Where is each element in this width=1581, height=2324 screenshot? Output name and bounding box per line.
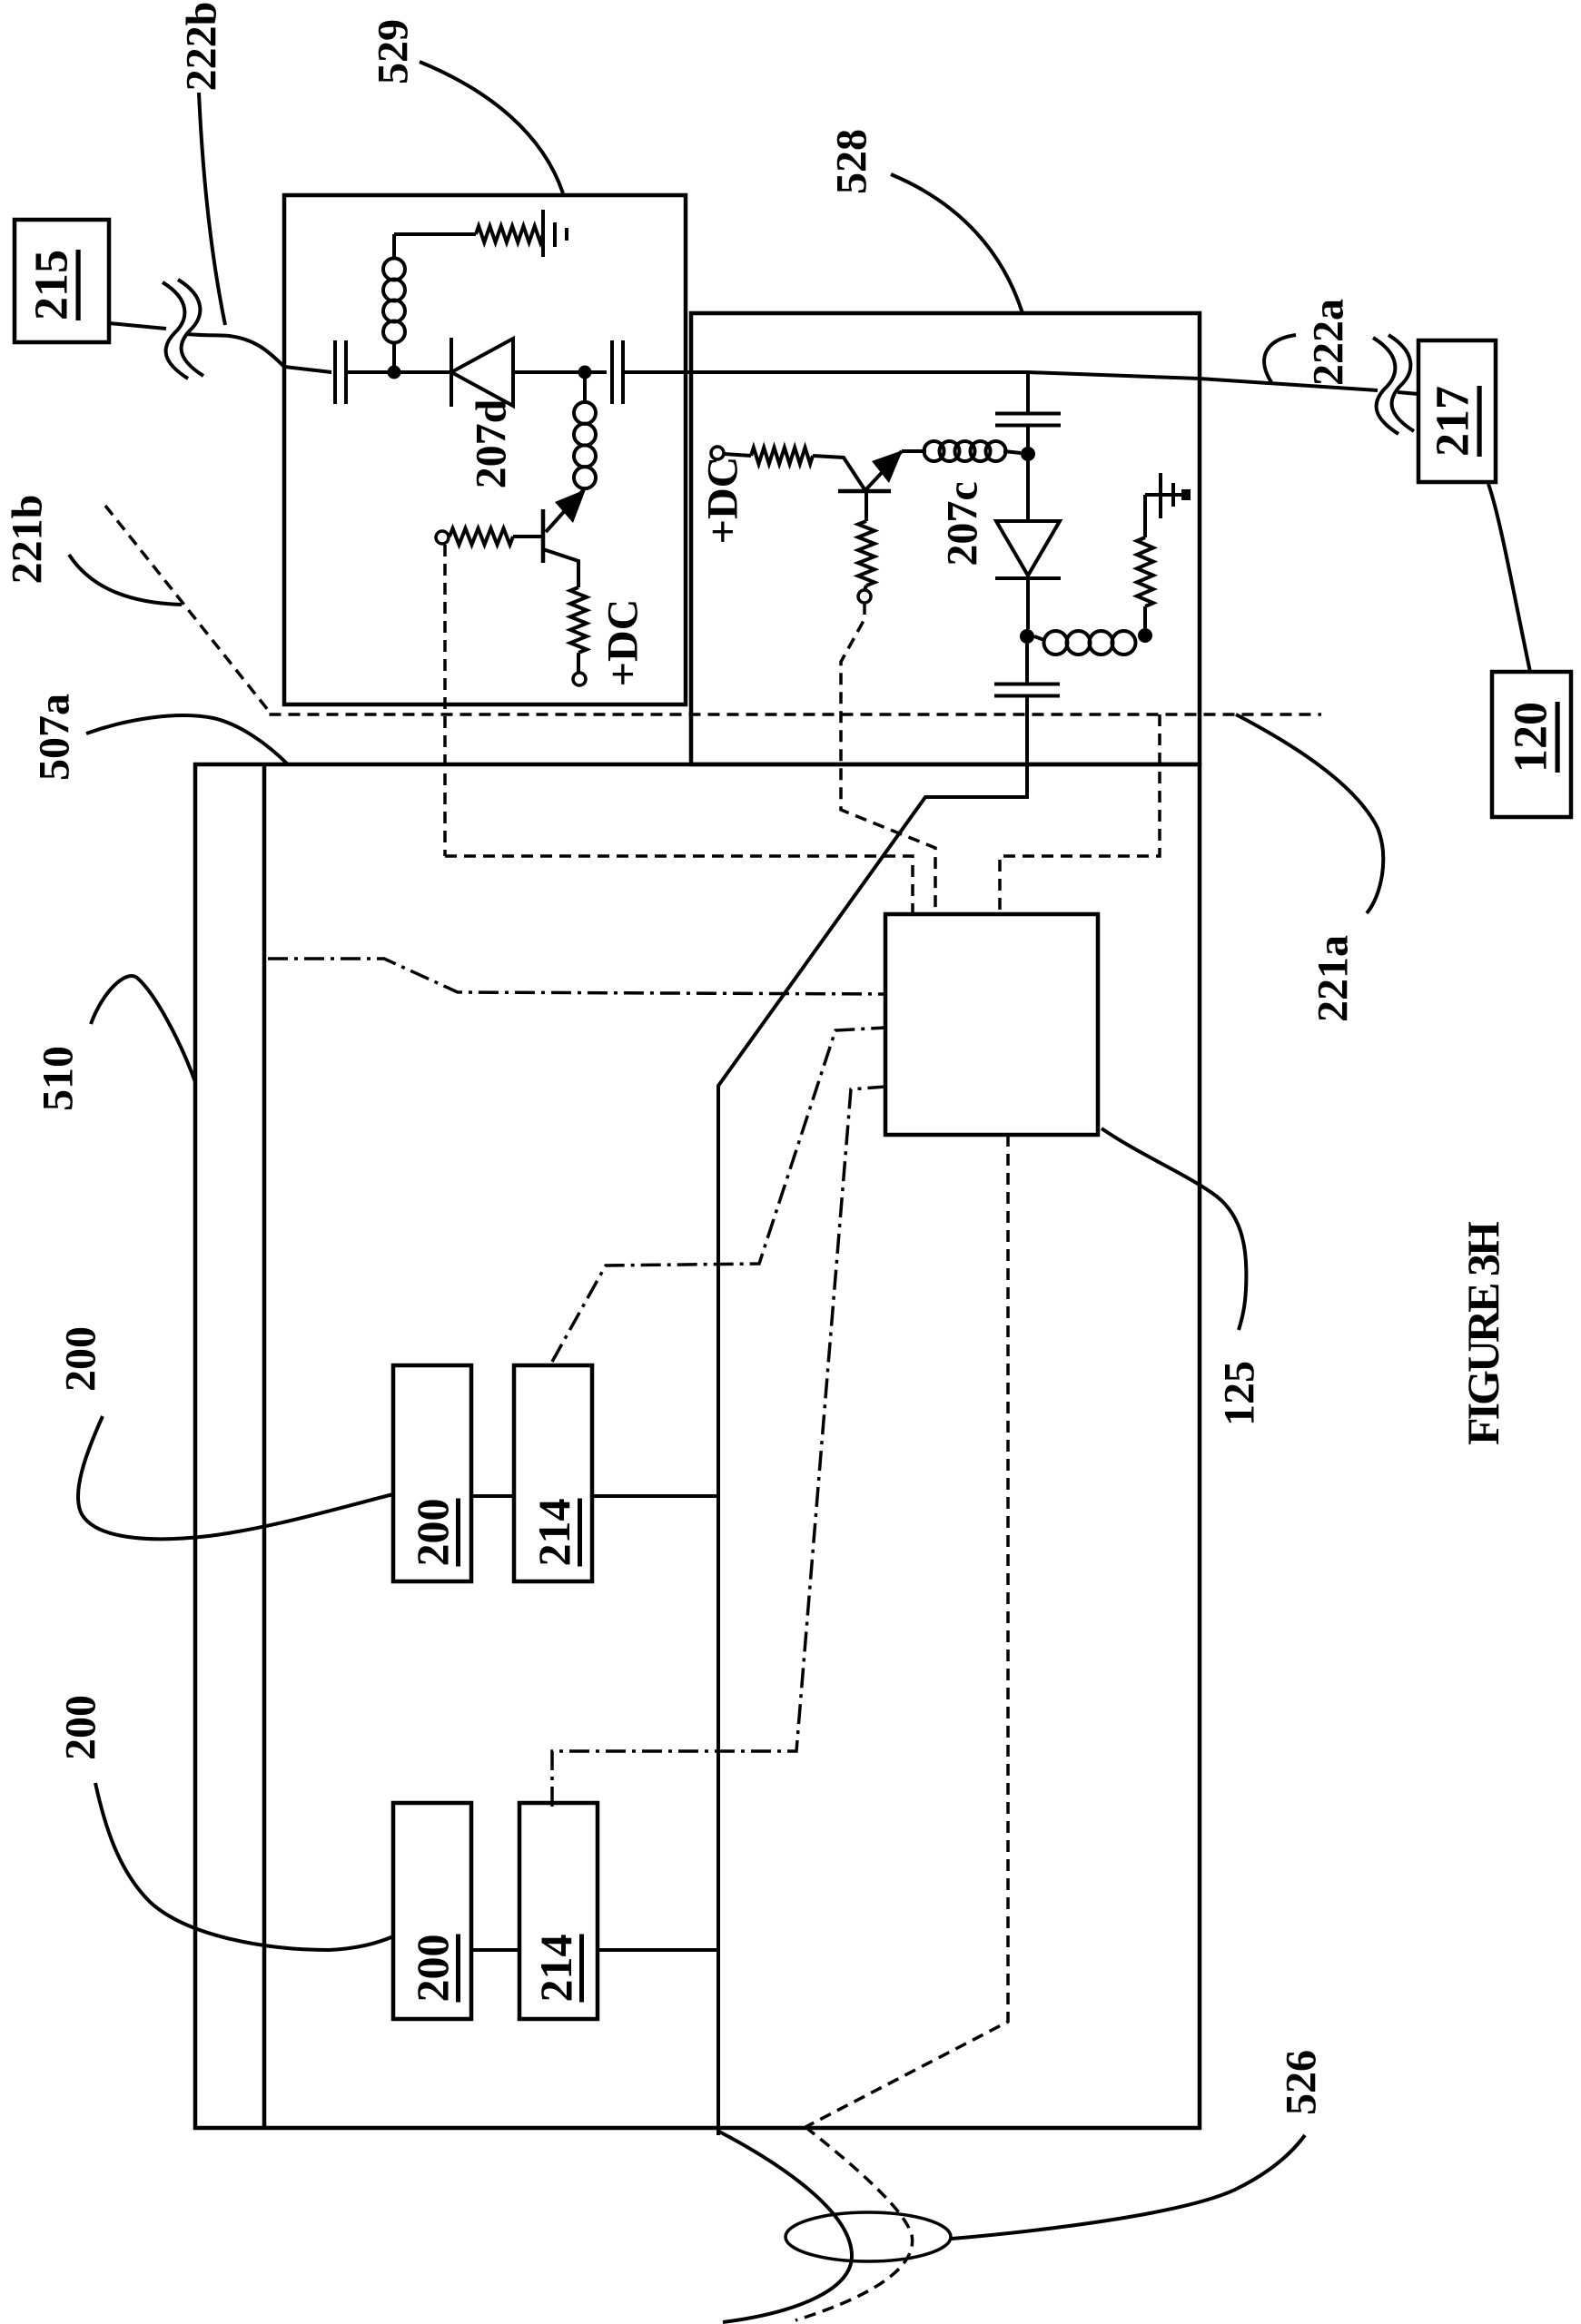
svg-text:+DC: +DC (699, 457, 747, 545)
svg-text:529: 529 (370, 19, 418, 84)
svg-text:526: 526 (1278, 2050, 1326, 2115)
svg-text:217: 217 (1428, 386, 1479, 457)
svg-text:207d: 207d (468, 399, 516, 488)
svg-text:200: 200 (57, 1695, 105, 1760)
svg-text:200: 200 (407, 1935, 458, 2003)
svg-text:200: 200 (57, 1326, 105, 1392)
svg-text:214: 214 (529, 1499, 579, 1567)
svg-text:221a: 221a (1309, 935, 1358, 1022)
svg-text:FIGURE 3H: FIGURE 3H (1457, 1221, 1508, 1445)
svg-text:507a: 507a (31, 694, 79, 781)
svg-text:222b: 222b (178, 2, 226, 92)
svg-text:207c: 207c (939, 481, 987, 566)
svg-text:528: 528 (828, 129, 876, 194)
svg-text:125: 125 (1216, 1361, 1264, 1426)
svg-text:510: 510 (35, 1046, 83, 1111)
svg-text:221b: 221b (4, 495, 52, 585)
svg-text:215: 215 (26, 250, 78, 320)
svg-text:+DC: +DC (599, 599, 647, 687)
svg-text:222a: 222a (1305, 299, 1353, 386)
svg-text:214: 214 (530, 1935, 581, 2003)
svg-text:120: 120 (1506, 702, 1557, 773)
svg-text:200: 200 (407, 1499, 458, 1567)
